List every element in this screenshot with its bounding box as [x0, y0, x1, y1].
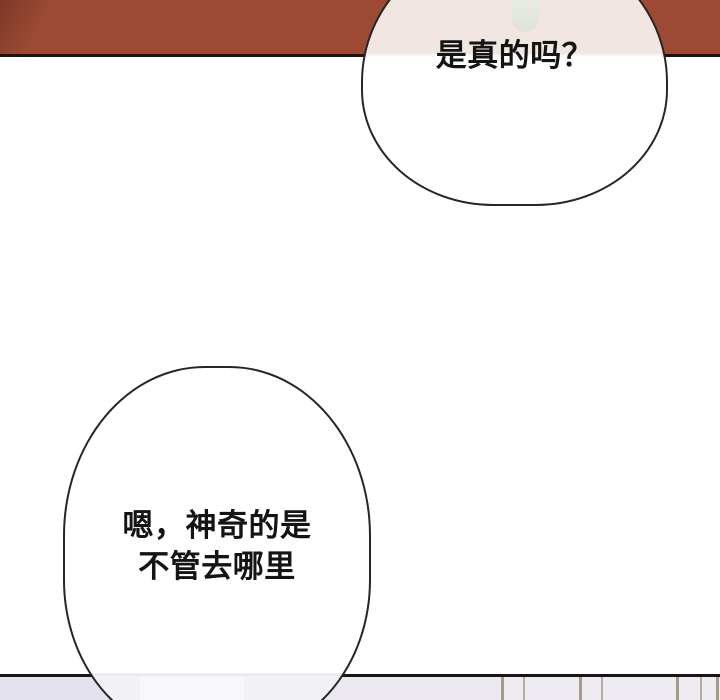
comic-page[interactable]: 是真的吗？ 嗯，神奇的是 不管去哪里: [0, 0, 720, 700]
speech-text-line-2: 不管去哪里: [65, 547, 369, 588]
background-bottle-silhouette: [511, 0, 539, 32]
wall-panel-line: [700, 677, 702, 700]
wall-panel-line: [676, 677, 679, 700]
speech-text-line-1: 嗯，神奇的是: [65, 506, 369, 547]
wall-panel-line: [601, 677, 603, 700]
speech-text-top: 是真的吗？: [363, 36, 666, 77]
wall-panel-line: [716, 677, 719, 700]
speech-text-bottom: 嗯，神奇的是 不管去哪里: [65, 506, 369, 588]
speech-bubble-bottom: 嗯，神奇的是 不管去哪里: [63, 366, 371, 700]
wall-panel-line: [501, 677, 504, 700]
wall-paneling: [500, 677, 720, 700]
speech-bubble-top: 是真的吗？: [361, 0, 668, 206]
wall-panel-line: [579, 677, 582, 700]
background-white-band: [140, 677, 244, 700]
panel-border-faint-line: [65, 673, 369, 676]
wall-panel-line: [523, 677, 525, 700]
